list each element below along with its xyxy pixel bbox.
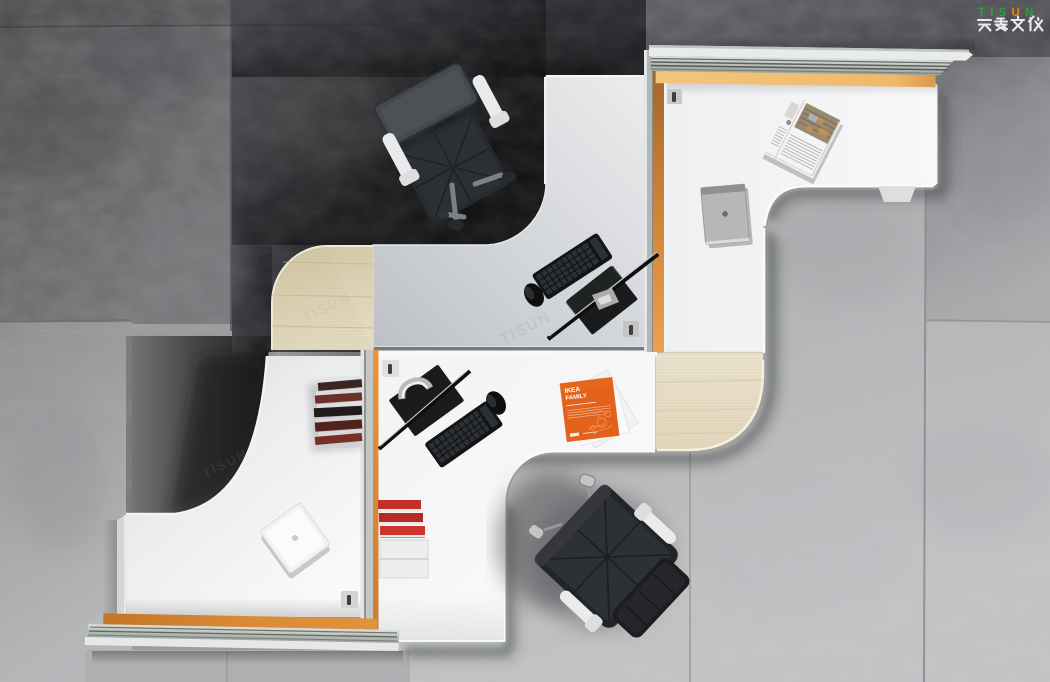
svg-text:TISUN: TISUN [978, 7, 1039, 19]
